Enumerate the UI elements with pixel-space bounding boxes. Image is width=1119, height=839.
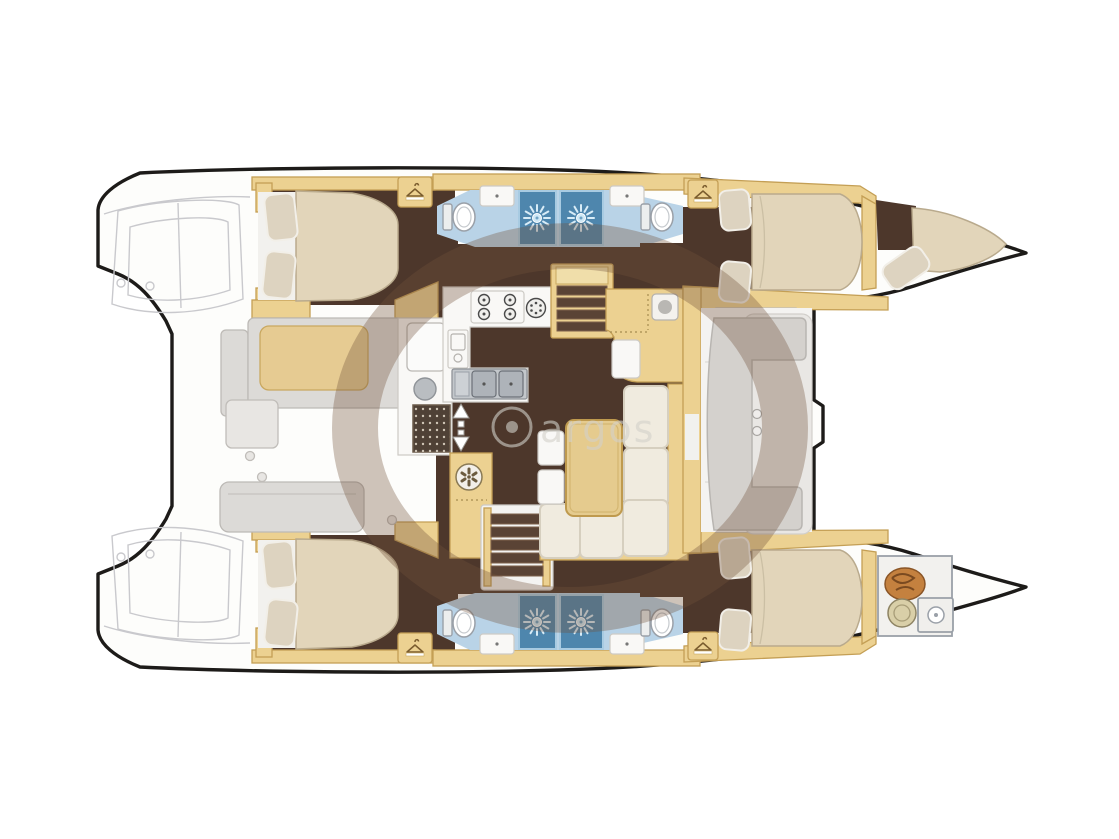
cup-holder <box>753 410 762 419</box>
yacht-floor-plan: argos <box>0 0 1119 839</box>
salon-seat[interactable] <box>612 340 640 378</box>
companionway-port[interactable] <box>551 264 613 338</box>
double-sink-icon <box>452 369 527 399</box>
stove-top <box>471 291 524 323</box>
forward-door[interactable] <box>685 414 699 460</box>
rope-drum <box>888 599 916 627</box>
cooktop-element-icon <box>527 299 546 318</box>
round-sink <box>414 378 436 400</box>
anchor-locker-bow <box>878 556 953 636</box>
floor-plan-canvas: argos <box>0 0 1119 839</box>
cup-holder <box>753 427 762 436</box>
watermark-text: argos <box>540 407 655 451</box>
anchor-chain-icon <box>885 568 925 600</box>
cockpit-bench[interactable] <box>220 482 364 532</box>
cockpit-table[interactable] <box>226 400 278 448</box>
vent-fan-icon <box>456 464 482 490</box>
drain-grate <box>413 405 450 452</box>
bow-locker <box>876 200 916 250</box>
